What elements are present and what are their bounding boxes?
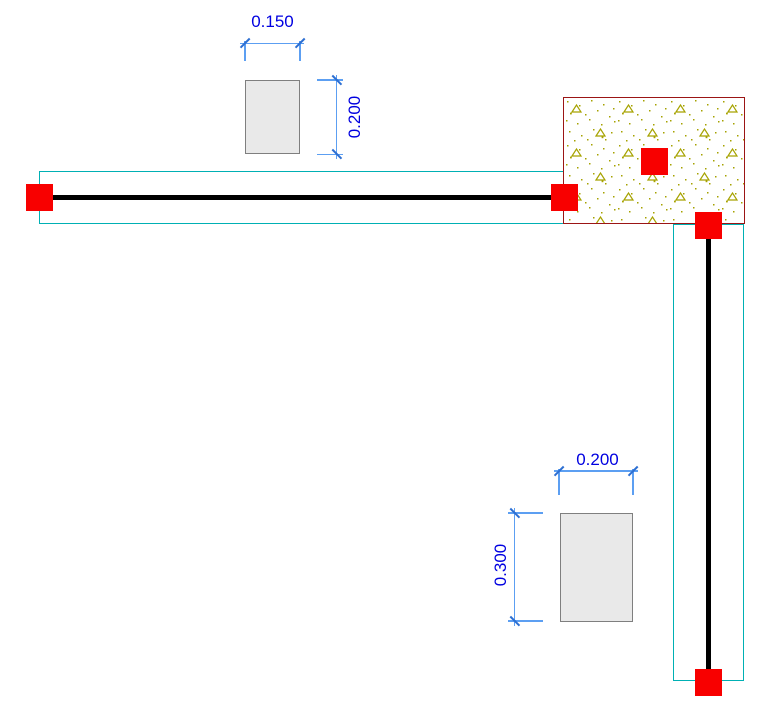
dimension-label: 0.150 — [245, 12, 300, 31]
extension-line — [508, 620, 543, 621]
extension-line — [299, 41, 300, 61]
node-wall-interior[interactable] — [641, 148, 668, 175]
extension-line — [244, 41, 245, 61]
dimension-tick — [509, 616, 519, 626]
cross-section-preview-b[interactable] — [560, 513, 633, 622]
dimension-line — [336, 75, 337, 159]
dimension-tick — [240, 38, 250, 48]
extension-line — [317, 79, 343, 80]
dimension-tick — [628, 466, 638, 476]
beam-line-vertical[interactable] — [706, 225, 711, 683]
node-beam-right[interactable] — [551, 184, 578, 211]
node-vertical-beam-top[interactable] — [695, 212, 722, 239]
drawing-canvas[interactable]: 0.150 0.200 0.200 0.300 — [0, 0, 784, 716]
dimension-tick — [332, 149, 342, 159]
dimension-tick — [332, 75, 342, 85]
dimension-line — [240, 43, 304, 44]
node-beam-left[interactable] — [26, 184, 53, 211]
dimension-line — [514, 508, 515, 626]
dimension-label: 0.300 — [491, 533, 511, 597]
dimension-tick — [295, 38, 305, 48]
extension-line — [632, 469, 633, 495]
extension-line — [508, 512, 543, 513]
extension-line — [317, 154, 343, 155]
dimension-tick — [509, 508, 519, 518]
dimension-label: 0.200 — [345, 85, 365, 149]
node-vertical-beam-bottom[interactable] — [695, 669, 722, 696]
dimension-tick — [554, 466, 564, 476]
beam-line-horizontal[interactable] — [40, 195, 566, 200]
dimension-label: 0.200 — [560, 450, 635, 469]
extension-line — [558, 469, 559, 495]
cross-section-preview-a[interactable] — [245, 80, 300, 154]
dimension-line — [554, 470, 638, 471]
